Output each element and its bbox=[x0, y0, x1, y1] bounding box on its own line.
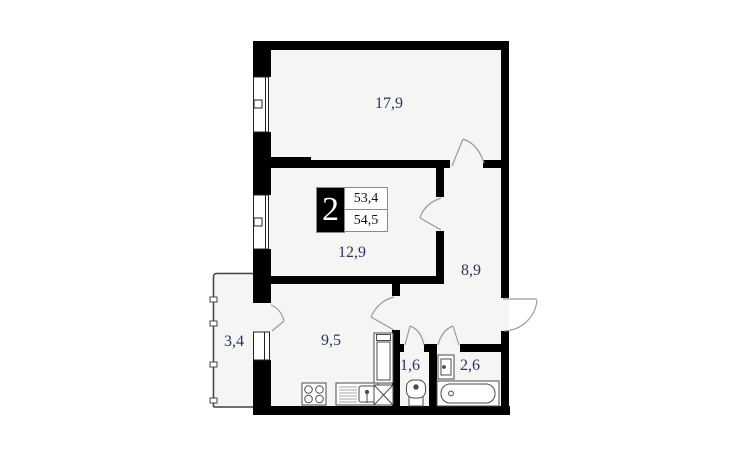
door-bathroom bbox=[438, 326, 459, 345]
bathtub-icon bbox=[437, 381, 499, 406]
stove-icon bbox=[302, 383, 326, 405]
total-area-value: 54,5 bbox=[344, 209, 388, 232]
label-bedroom: 12,9 bbox=[338, 245, 366, 261]
living-area-value: 53,4 bbox=[344, 187, 388, 210]
label-living-room: 17,9 bbox=[375, 96, 403, 112]
room-count-badge: 2 bbox=[316, 187, 345, 233]
door-kitchen bbox=[371, 297, 394, 330]
window-bedroom bbox=[254, 195, 269, 249]
door-entrance bbox=[503, 299, 537, 331]
area-table: 53,4 54,5 bbox=[344, 187, 388, 233]
window-living-room bbox=[254, 77, 269, 132]
vent-shaft-icon bbox=[374, 385, 393, 405]
door-bedroom bbox=[420, 198, 441, 230]
door-wc bbox=[405, 326, 424, 345]
washbasin-icon bbox=[438, 355, 454, 379]
apartment-info-box: 2 53,4 54,5 bbox=[316, 187, 388, 233]
label-hallway: 8,9 bbox=[461, 263, 481, 279]
label-balcony: 3,4 bbox=[224, 334, 244, 350]
kitchen-sink-icon bbox=[336, 383, 378, 405]
door-living-room bbox=[452, 139, 484, 166]
floor-plan: 17,9 12,9 8,9 9,5 3,4 1,6 2,6 2 53,4 54,… bbox=[0, 0, 749, 450]
fridge-cabinet-icon bbox=[374, 333, 393, 383]
label-bathroom: 2,6 bbox=[460, 358, 480, 374]
window-balcony-block bbox=[254, 332, 270, 360]
label-wc: 1,6 bbox=[400, 358, 420, 374]
label-kitchen: 9,5 bbox=[321, 333, 341, 349]
toilet-icon bbox=[407, 380, 426, 406]
door-balcony bbox=[271, 305, 284, 331]
